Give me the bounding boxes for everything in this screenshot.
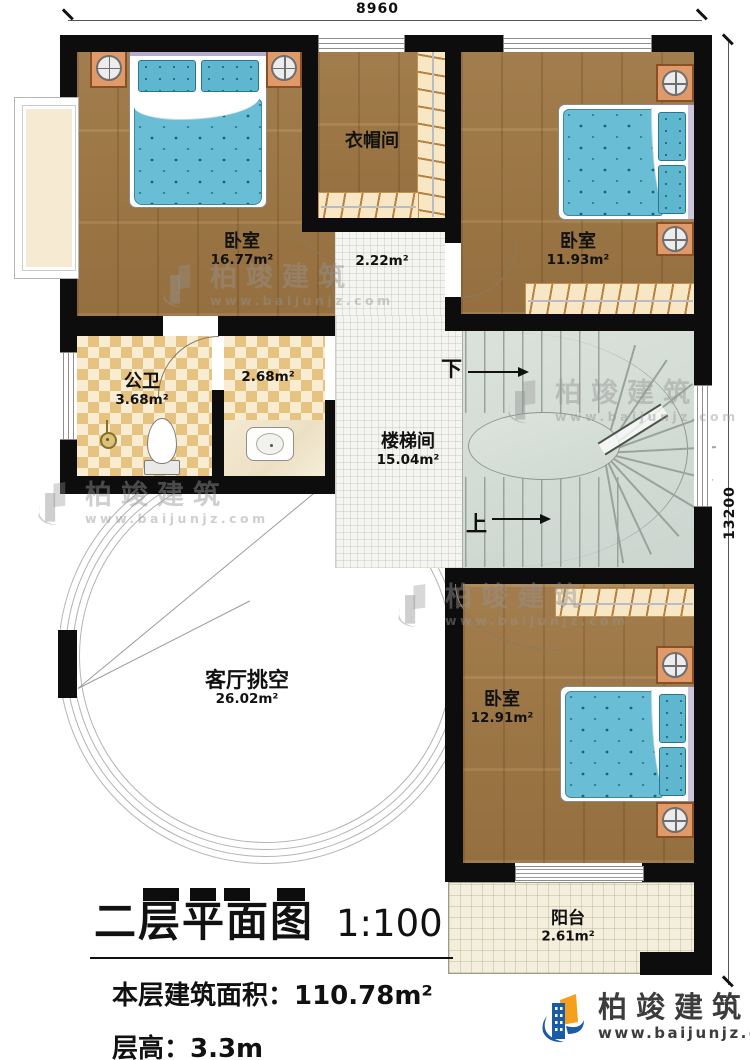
bedroom2-nightstand	[656, 222, 694, 256]
wall-bedroom1-cloak	[302, 43, 318, 218]
wall-mid-horizontal-a	[60, 316, 163, 336]
cloakroom-rack-vertical	[417, 48, 447, 220]
floor-height-text: 层高：3.3m	[112, 1028, 453, 1060]
bedroom3-closet-rack	[555, 588, 696, 617]
window-top-cloakroom	[318, 35, 405, 52]
wall-bedroom3-top	[445, 568, 694, 584]
bedroom3-label: 卧室12.91m²	[471, 690, 534, 726]
floor-plan-canvas: 下 上	[0, 0, 750, 1060]
plan-title: 二层平面图	[94, 888, 314, 949]
window-bathroom	[60, 352, 77, 440]
bedroom2-closet-rack	[525, 283, 696, 316]
bedroom1-label: 卧室16.77m²	[211, 232, 274, 268]
dimension-top-value: 8960	[356, 1, 399, 17]
bedroom3-bed	[560, 686, 697, 802]
bedroom2-bed	[558, 104, 697, 220]
window-top-bedroom2	[503, 35, 652, 52]
wall-living-left-chunk	[58, 630, 77, 698]
title-block: 二层平面图 1:100 本层建筑面积：110.78m² 层高：3.3m	[90, 888, 453, 1060]
wall-bedroom3-bottom-b	[642, 863, 694, 882]
bay-window	[14, 97, 79, 279]
dimension-line-top	[68, 20, 702, 21]
wall-mid-horizontal-b	[218, 316, 335, 336]
bedroom2-label: 卧室11.93m²	[547, 232, 610, 268]
floor-area-text: 本层建筑面积：110.78m²	[112, 975, 453, 1012]
wall-hall-bedroom2	[445, 43, 461, 243]
bathroom-label: 公卫3.68m²	[115, 372, 168, 408]
plan-scale: 1:100	[336, 902, 443, 945]
bedroom1-bed	[129, 46, 267, 208]
bedroom1-nightstand	[266, 47, 302, 88]
wall-bedroom3-bottom-a	[445, 863, 515, 882]
window-stairwell	[694, 385, 712, 507]
wall-cloak-bottom	[302, 218, 445, 232]
brand-name: 柏竣建筑	[598, 992, 750, 1024]
brand-url: www.baijunjz.com	[598, 1024, 750, 1042]
wall-bathroom-bottom	[60, 476, 335, 494]
bedroom3-nightstand	[656, 646, 694, 684]
stair-center-void	[468, 412, 620, 480]
wall-wash-landing	[325, 400, 335, 478]
wall-left-upper	[60, 35, 77, 103]
dimension-right-value: 13200	[722, 483, 738, 543]
stairwell-label: 楼梯间15.04m²	[377, 432, 440, 468]
brand-logo-icon	[540, 990, 590, 1044]
cloakroom-rack-horizontal	[318, 192, 419, 220]
brand-logo: 柏竣建筑 www.baijunjz.com	[540, 990, 750, 1044]
balcony-label: 阳台2.61m²	[541, 909, 594, 944]
washbasin	[246, 427, 294, 461]
living-void-label: 客厅挑空26.02m²	[205, 668, 289, 708]
balcony-sliding-door	[515, 866, 644, 881]
stair-down-label: 下	[441, 353, 462, 383]
wall-bedroom3-left	[445, 568, 463, 863]
bedroom2-nightstand	[656, 64, 694, 102]
wall-bath-wash	[212, 390, 224, 478]
stair-up-label: 上	[466, 508, 487, 538]
washroom-area-label: 2.68m²	[241, 370, 294, 386]
hallway-floor	[335, 232, 445, 316]
wall-bedroom2-bottom	[445, 314, 694, 331]
bedroom1-nightstand	[90, 47, 127, 88]
stair-up-arrow	[492, 518, 542, 520]
bedroom3-nightstand	[656, 802, 694, 838]
cloakroom-label: 衣帽间	[345, 132, 399, 153]
stair-down-arrow	[468, 371, 520, 373]
wall-balcony-corner	[640, 952, 712, 975]
hallway-area-label: 2.22m²	[355, 254, 408, 270]
